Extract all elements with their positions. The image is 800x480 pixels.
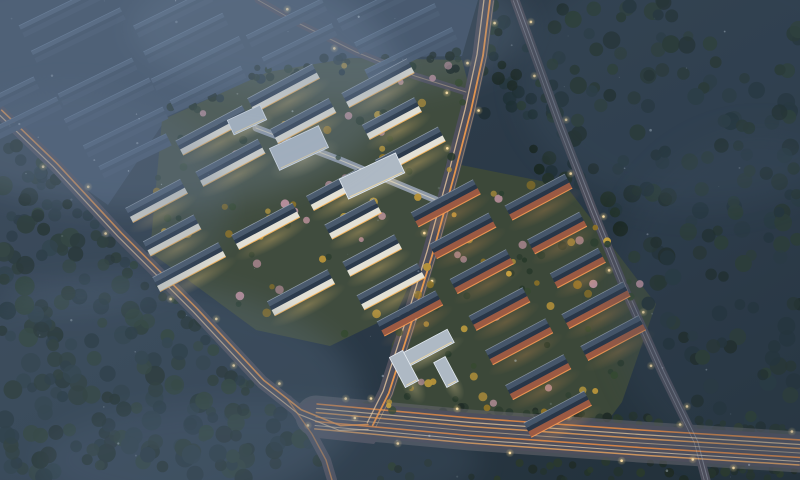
scene-canvas	[0, 0, 800, 480]
screenshot-root	[0, 0, 800, 480]
